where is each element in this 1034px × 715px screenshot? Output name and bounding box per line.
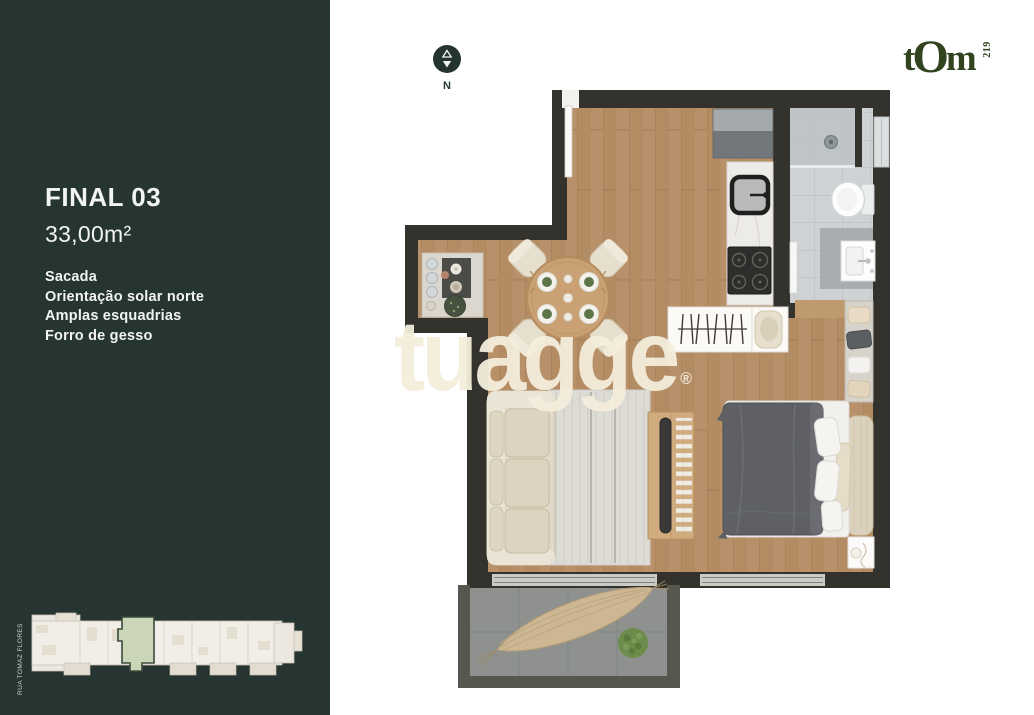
feature-list: Sacada Orientação solar norte Amplas esq…: [45, 268, 204, 346]
floorplan-page: FINAL 03 33,00m² Sacada Orientação solar…: [0, 0, 1034, 715]
sidebar: FINAL 03 33,00m² Sacada Orientação solar…: [0, 0, 330, 715]
shower-floor: [790, 108, 855, 167]
shower-glass: [790, 165, 855, 168]
tv-console: [648, 412, 694, 539]
bathroom-door: [790, 242, 797, 293]
nightstand: [848, 537, 874, 568]
coat-bench: [668, 307, 788, 352]
unit-area: 33,00m²: [45, 223, 204, 246]
feature-item: Forro de gesso: [45, 327, 204, 347]
brand-word: tOm: [903, 41, 975, 74]
north-arrow-icon: [432, 44, 462, 74]
headboard: [847, 416, 873, 535]
unit-title: FINAL 03: [45, 184, 204, 210]
vanity-sink: [841, 241, 875, 281]
bedroom-window: [700, 574, 825, 586]
potted-plant: [618, 628, 648, 658]
bathroom-door-threshold: [795, 300, 845, 318]
unit-info: FINAL 03 33,00m² Sacada Orientação solar…: [45, 184, 204, 346]
key-plan-highlighted-unit: [118, 617, 154, 671]
feature-item: Sacada: [45, 268, 204, 288]
towel-shelf: [845, 301, 873, 402]
feature-item: Orientação solar norte: [45, 288, 204, 308]
feature-item: Amplas esquadrias: [45, 307, 204, 327]
sideboard: [422, 253, 483, 317]
living-area: [487, 390, 694, 565]
slat-panel: [676, 418, 692, 533]
cooktop: [728, 247, 771, 294]
bench-stool: [755, 311, 782, 348]
sofa: [487, 391, 555, 565]
street-label: RUA TOMAZ FLORES: [17, 623, 24, 695]
apartment-floor-plan: [395, 85, 915, 697]
rug: [548, 390, 650, 565]
kitchen-sink: [732, 177, 769, 213]
tv: [660, 418, 671, 533]
balcony-sliding-door: [492, 574, 657, 586]
building-key-plan: RUA TOMAZ FLORES: [12, 605, 312, 700]
brand-number: 219: [981, 41, 992, 58]
toilet: [832, 182, 875, 217]
fridge: [713, 109, 773, 158]
brand-logo: tOm 219: [903, 36, 998, 78]
key-plan-building: [32, 613, 302, 675]
duvet: [717, 403, 823, 539]
